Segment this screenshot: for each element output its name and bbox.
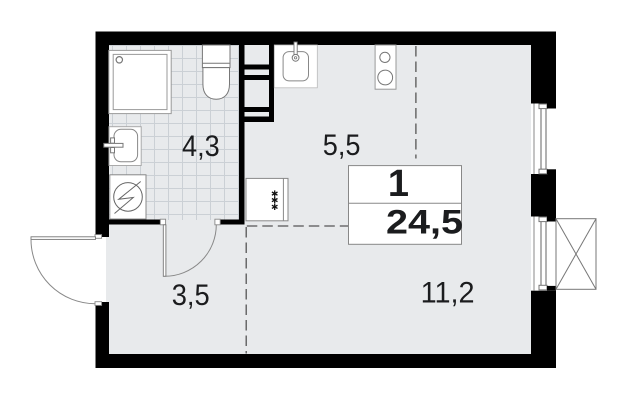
svg-text:1: 1 <box>388 163 409 205</box>
svg-text:4,3: 4,3 <box>182 130 220 163</box>
svg-text:24,5: 24,5 <box>386 204 463 242</box>
svg-text:3,5: 3,5 <box>172 279 210 312</box>
svg-text:11,2: 11,2 <box>421 277 475 310</box>
svg-text:5,5: 5,5 <box>323 129 361 162</box>
